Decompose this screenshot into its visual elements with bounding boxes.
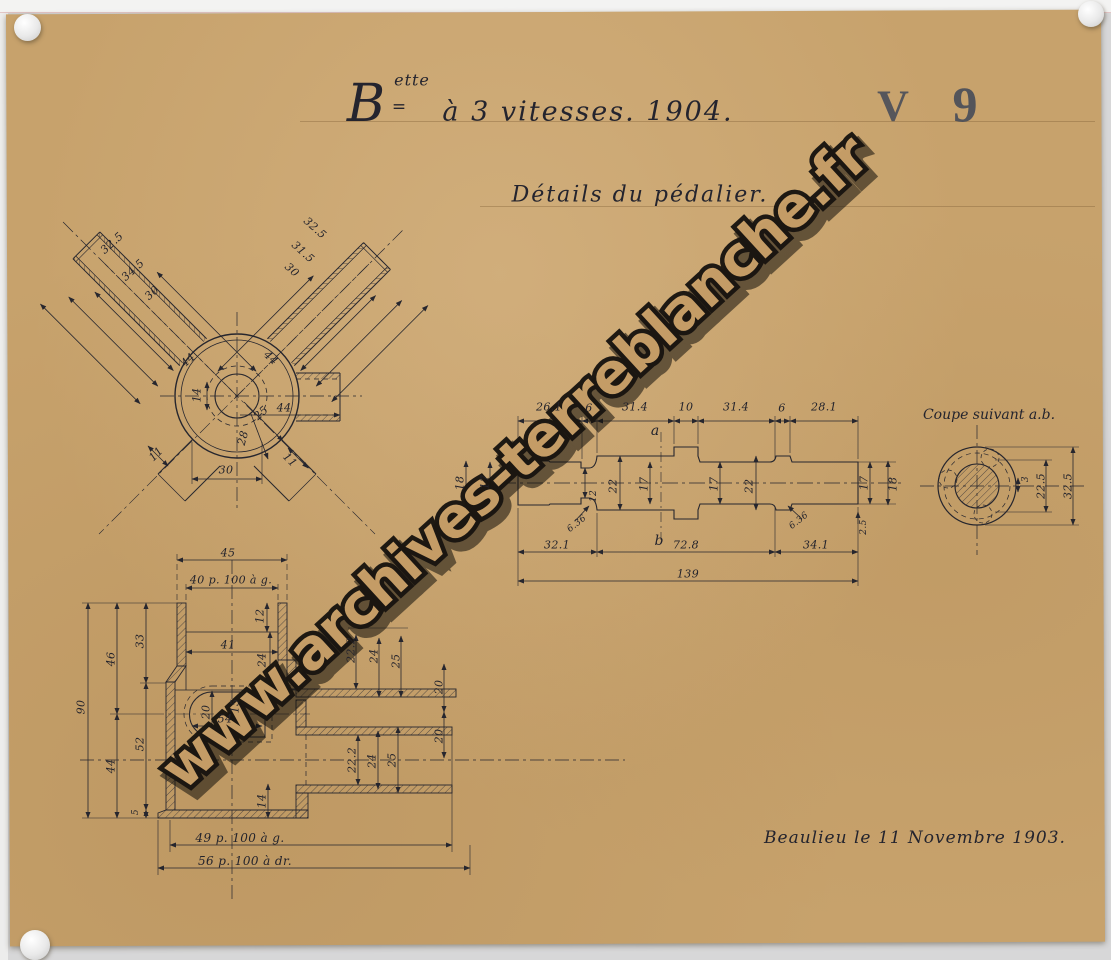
dim-label: 17 — [638, 477, 651, 492]
drawing-overlay: www.archives-terreblanche.fr www.archive… — [0, 0, 1111, 960]
drawing-subtitle: Détails du pédalier. — [512, 183, 769, 208]
dim-label: 14 — [256, 794, 269, 809]
dim-label: 12 — [254, 609, 267, 624]
corner-pin — [1078, 1, 1104, 27]
dim-label: 25 — [386, 753, 399, 768]
brand-superscript: ette — [394, 71, 430, 90]
dim-label: 28.1 — [811, 401, 837, 414]
dim-label: 33 — [134, 634, 147, 649]
dim-label: 44 — [105, 759, 118, 774]
dim-label: 22 — [607, 479, 620, 494]
dim-label: 90 — [75, 700, 88, 715]
dim-label: 34.1 — [803, 539, 829, 552]
dim-label: 10 — [679, 401, 694, 414]
taper-note-right: 56 p. 100 à dr. — [198, 854, 292, 868]
dim-label: 3 — [1021, 476, 1031, 482]
dim-label: 22.2 — [345, 637, 358, 663]
watermark: www.archives-terreblanche.fr www.archive… — [149, 122, 889, 809]
taper-note-left: 49 p. 100 à g. — [195, 831, 284, 845]
dim-label: 25 — [390, 654, 403, 669]
dim-label: 24 — [256, 653, 269, 668]
dim-label: 72.8 — [673, 539, 699, 552]
dim-label: 24 — [366, 754, 379, 769]
dim-total-length: 139 — [677, 568, 699, 581]
dim-label: 52 — [134, 737, 147, 752]
dim-label: 26.1 — [536, 401, 562, 414]
plate-code-digit: 9 — [953, 75, 978, 133]
dim-label: 5 — [131, 809, 141, 815]
signature-date: Beaulieu le 11 Novembre 1903. — [764, 828, 1066, 848]
scanned-drawing: www.archives-terreblanche.fr www.archive… — [0, 0, 1111, 960]
dim-label: 41 — [221, 639, 236, 652]
corner-pin — [20, 930, 50, 960]
dim-label: 18 — [454, 476, 467, 491]
section-title: Coupe suivant a.b. — [923, 407, 1055, 423]
dim-label: 12 — [589, 490, 599, 502]
brand-equals: = — [392, 97, 406, 117]
page-title: à 3 vitesses. 1904. — [442, 97, 733, 128]
dim-label: 6 — [585, 402, 592, 415]
brand-initial: B — [347, 74, 385, 134]
section-view-linework — [920, 425, 1085, 555]
front-view-linework — [11, 200, 453, 534]
dim-label: 32.1 — [544, 539, 570, 552]
dim-label: 31.4 — [622, 401, 648, 414]
dim-label: 31.4 — [723, 401, 749, 414]
dim-note: 40 p. 100 à g. — [190, 574, 272, 587]
corner-pin — [14, 14, 41, 41]
dim-label: 22.2 — [346, 747, 359, 773]
dim-label: 17 — [708, 477, 721, 492]
dim-label: 30 — [219, 464, 234, 477]
dim-label: 46 — [105, 652, 118, 667]
section-mark-a: a — [651, 423, 659, 439]
dim-label: 22.5 — [1035, 473, 1048, 499]
dim-label: 32.5 — [1062, 473, 1075, 499]
dim-label: 44 — [277, 402, 292, 415]
dim-label: 22 — [743, 479, 756, 494]
watermark-text: www.archives-terreblanche.fr — [149, 122, 883, 802]
dim-label: 15 — [229, 699, 242, 714]
chamfer-note: 2.5 — [859, 519, 869, 535]
drawing-linework: www.archives-terreblanche.fr www.archive… — [0, 0, 1111, 960]
dim-label: 17 — [479, 475, 492, 490]
dim-label: 24 — [368, 649, 381, 664]
section-mark-b: b — [655, 533, 664, 549]
dim-label: 14 — [191, 388, 204, 403]
dim-label: 17 — [858, 476, 871, 491]
dim-label: 20 — [200, 705, 213, 720]
plate-code-letter: V — [877, 81, 909, 132]
dim-label: 20 — [433, 680, 446, 695]
dim-label: 54 — [218, 713, 233, 726]
dim-label: 6 — [778, 402, 785, 415]
dim-label: 20 — [433, 729, 446, 744]
dim-label: 45 — [221, 547, 236, 560]
dim-label: 18 — [887, 477, 900, 492]
